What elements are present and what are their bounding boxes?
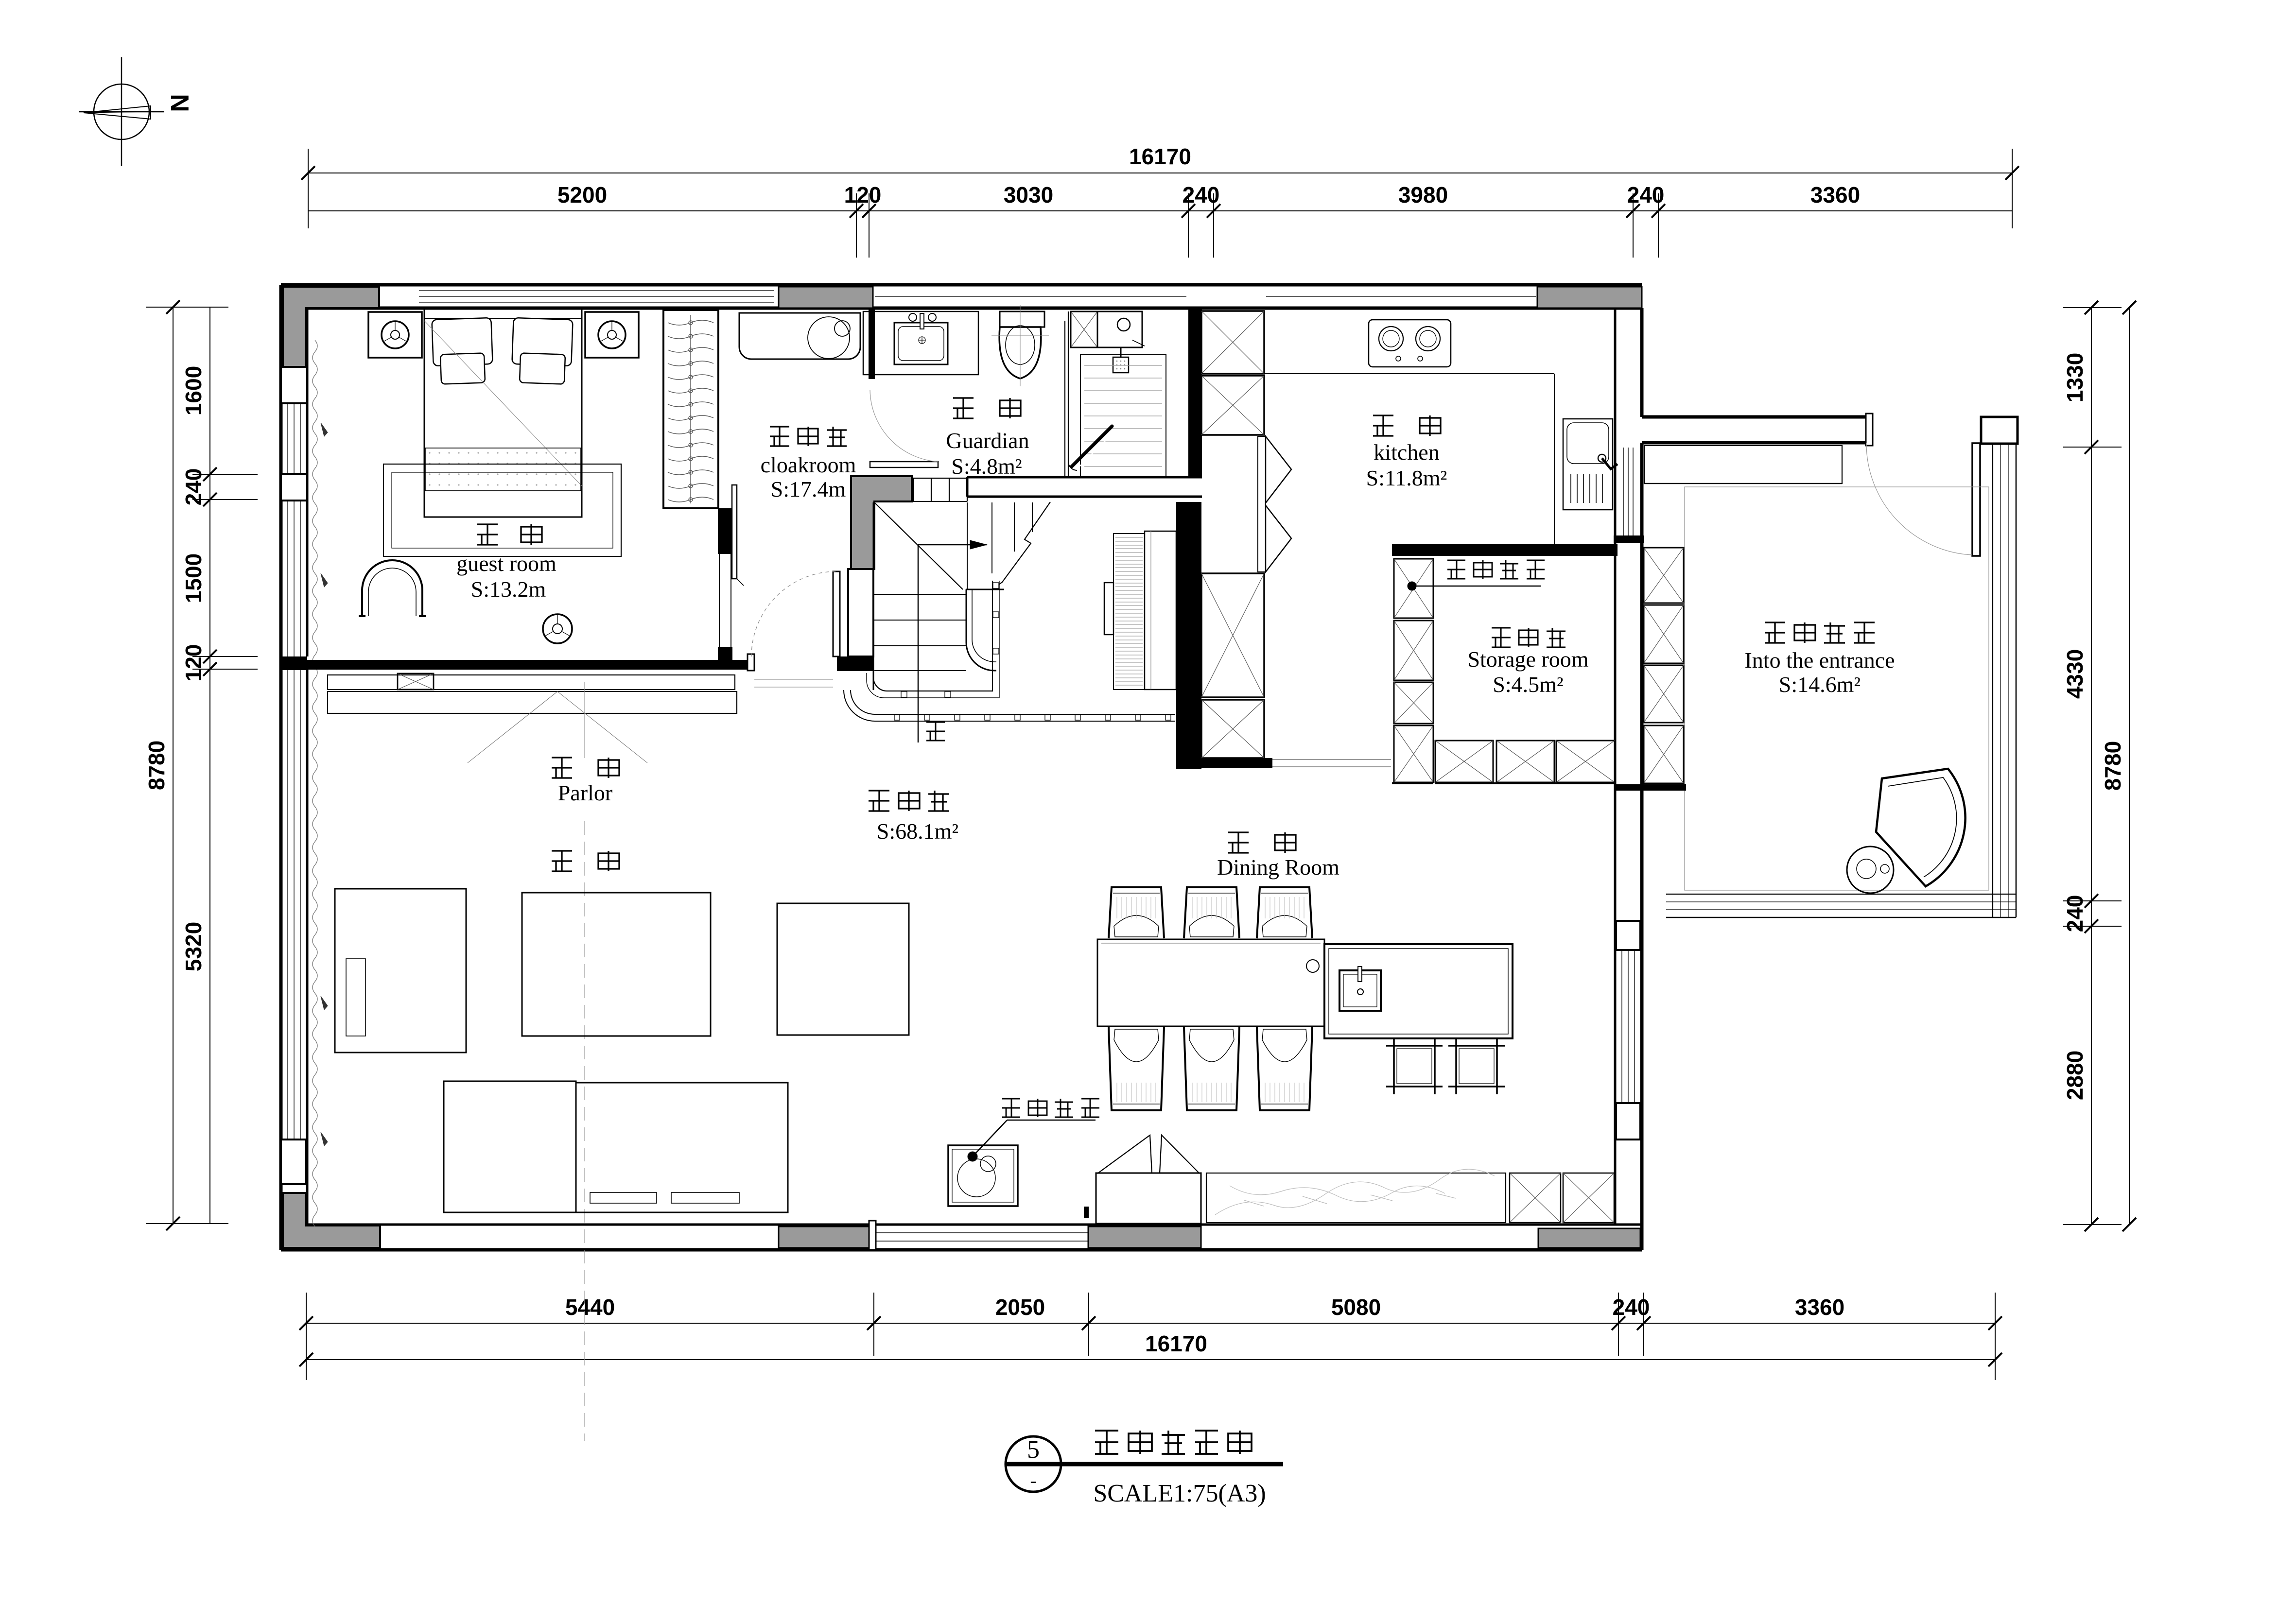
svg-text:120: 120 (844, 182, 882, 207)
svg-text:3360: 3360 (1795, 1295, 1844, 1320)
svg-text:S:4.5m²: S:4.5m² (1493, 672, 1563, 697)
svg-text:16170: 16170 (1129, 144, 1191, 169)
svg-text:guest room: guest room (456, 551, 557, 576)
svg-text:S:13.2m: S:13.2m (471, 577, 546, 602)
svg-text:kitchen: kitchen (1374, 440, 1439, 465)
svg-text:S:68.1m²: S:68.1m² (877, 819, 958, 844)
svg-text:240: 240 (2062, 895, 2087, 932)
svg-text:SCALE1:75(A3): SCALE1:75(A3) (1093, 1480, 1266, 1507)
svg-text:8780: 8780 (144, 741, 169, 790)
svg-text:Guardian: Guardian (946, 428, 1029, 453)
svg-text:240: 240 (1627, 182, 1665, 207)
svg-text:5: 5 (1027, 1436, 1040, 1464)
svg-text:S:11.8m²: S:11.8m² (1366, 466, 1447, 490)
svg-text:1500: 1500 (181, 553, 206, 603)
svg-text:-: - (1030, 1469, 1036, 1491)
svg-text:S:14.6m²: S:14.6m² (1779, 672, 1861, 697)
svg-text:Parlor: Parlor (558, 780, 612, 805)
svg-text:5320: 5320 (181, 922, 206, 971)
svg-text:Dining Room: Dining Room (1217, 855, 1339, 880)
svg-text:3360: 3360 (1810, 182, 1860, 207)
svg-text:3980: 3980 (1398, 182, 1448, 207)
svg-text:2880: 2880 (2062, 1051, 2087, 1100)
svg-text:Storage room: Storage room (1467, 647, 1588, 672)
svg-text:S:17.4m: S:17.4m (771, 477, 846, 501)
svg-text:240: 240 (181, 468, 206, 506)
svg-text:S:4.8m²: S:4.8m² (951, 454, 1022, 479)
svg-text:5440: 5440 (565, 1295, 615, 1320)
svg-text:5080: 5080 (1331, 1295, 1381, 1320)
svg-text:8780: 8780 (2100, 741, 2125, 791)
svg-text:120: 120 (181, 644, 206, 682)
svg-text:240: 240 (1613, 1295, 1650, 1320)
svg-text:2050: 2050 (995, 1295, 1045, 1320)
svg-text:Into the entrance: Into the entrance (1744, 648, 1895, 673)
svg-text:1330: 1330 (2062, 353, 2087, 402)
svg-text:3030: 3030 (1004, 182, 1053, 207)
svg-text:5200: 5200 (557, 182, 607, 207)
svg-text:16170: 16170 (1145, 1331, 1207, 1356)
svg-text:cloakroom: cloakroom (761, 452, 856, 477)
svg-text:N: N (165, 94, 193, 112)
svg-text:240: 240 (1183, 182, 1220, 207)
svg-text:1600: 1600 (181, 366, 206, 415)
svg-text:4330: 4330 (2062, 649, 2087, 699)
